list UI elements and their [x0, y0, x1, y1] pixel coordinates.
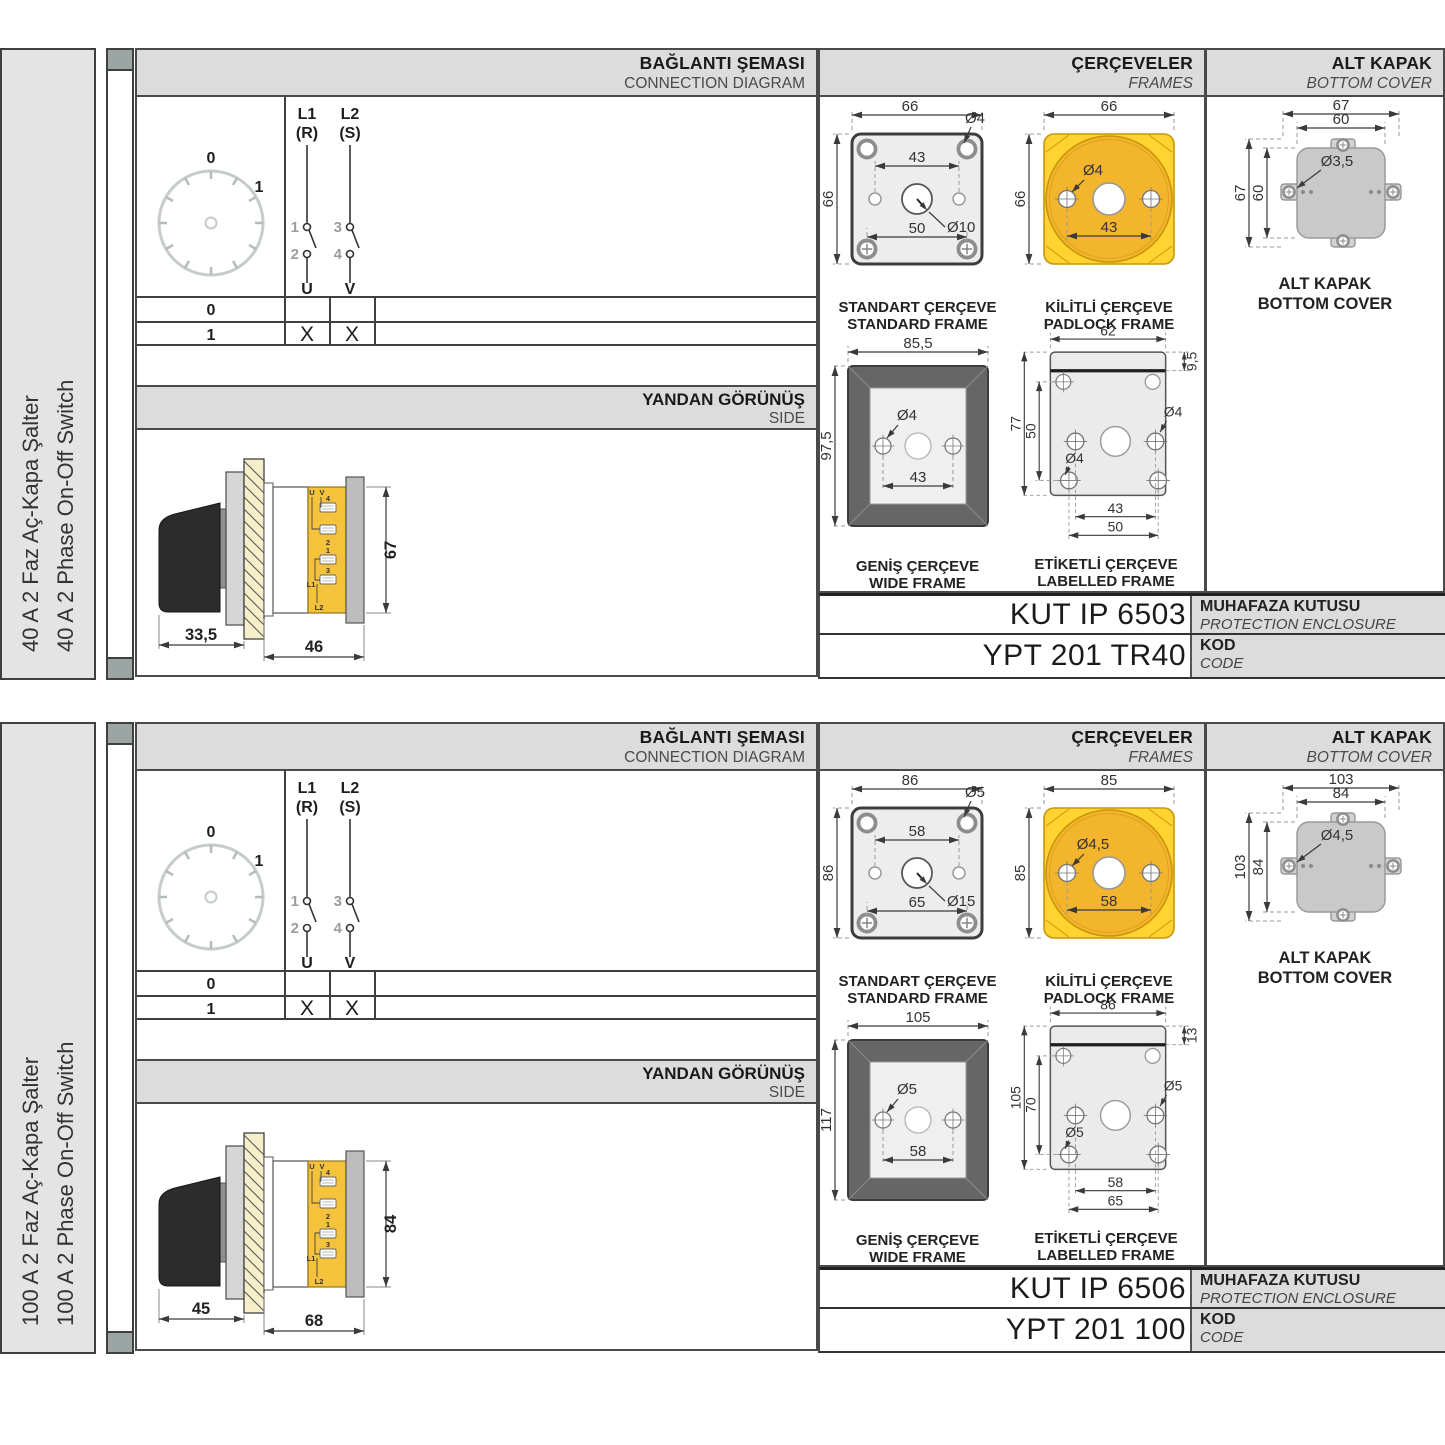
- dim-label: 46: [305, 638, 323, 656]
- header-title-en: FRAMES: [820, 74, 1193, 93]
- dim-label: 43: [1108, 500, 1124, 516]
- terminal-l2: L2: [315, 603, 324, 612]
- strip-square-bottom: [108, 657, 132, 678]
- connection-diagram-drawing: 0 1 L1 (R) L2 (S) 1 2 3 4 U V 0: [137, 97, 816, 347]
- dim-label: Ø5: [965, 784, 985, 801]
- product-code-row: YPT 201 100 KOD CODE: [818, 1309, 1445, 1353]
- dim-label: Ø5: [1164, 1077, 1183, 1093]
- connection-diagram-drawing: 0 1 L1 (R) L2 (S) 1 2 3 4 U V 0: [137, 771, 816, 1021]
- product-name-tr: 40 A 2 Faz Aç-Kapa Şalter: [18, 50, 44, 678]
- dim-label: 97,5: [818, 431, 835, 460]
- wide-frame-area: 85,5 97,5 Ø4 43: [825, 338, 1010, 558]
- header-connection-diagram: BAĞLANTI ŞEMASI CONNECTION DIAGRAM: [137, 50, 816, 97]
- terminal-1: 1: [326, 1220, 330, 1229]
- dim-label: Ø4,5: [1077, 836, 1110, 853]
- contact-4-label: 4: [334, 920, 343, 937]
- selector-dial: 0 1: [159, 824, 264, 949]
- bottom-cover-drawing: 103 84 103 84 Ø4,5: [1235, 774, 1435, 946]
- title-tr: STANDART ÇERÇEVE: [820, 973, 1015, 990]
- connection-diagram-area: 0 1 L1 (R) L2 (S) 1 2 3 4 U V 0: [137, 97, 816, 347]
- dim-label: 43: [909, 149, 926, 166]
- dim-label: 60: [1333, 111, 1350, 128]
- product-name-tr: 100 A 2 Faz Aç-Kapa Şalter: [18, 724, 44, 1352]
- switch-position-table: 0 1 X X: [207, 302, 359, 346]
- strip-square-top: [108, 50, 132, 71]
- dim-label: 85: [1101, 772, 1118, 789]
- dim-label: 67: [1232, 185, 1249, 202]
- title-tr: STANDART ÇERÇEVE: [820, 299, 1015, 316]
- contact-closed-u: X: [300, 323, 314, 346]
- side-view-drawing: U V 4 2 1 3 L1 L2 45 68: [139, 1109, 589, 1347]
- dim-height: 85: [1012, 808, 1041, 938]
- standard-frame-drawing: 86 86 Ø5 58 Ø15: [825, 774, 1010, 971]
- header-title-tr: YANDAN GÖRÜNÜŞ: [137, 389, 805, 410]
- phase-s-label: (S): [339, 799, 360, 816]
- title-tr: GENİŞ ÇERÇEVE: [820, 1232, 1015, 1249]
- terminal-u-label: U: [301, 955, 313, 972]
- dim-label: 84: [382, 1214, 400, 1233]
- dim-width: 66: [1044, 98, 1174, 130]
- dim-label: Ø10: [947, 219, 975, 236]
- title-en: BOTTOM COVER: [1207, 968, 1443, 988]
- front-plate: [226, 472, 244, 625]
- strip-square-top: [108, 724, 132, 745]
- terminal-v: V: [319, 488, 324, 497]
- enclosure-row: KUT IP 6506 MUHAFAZA KUTUSU PROTECTION E…: [818, 1267, 1445, 1309]
- dim-label: 58: [1101, 893, 1118, 910]
- header-title-tr: ALT KAPAK: [1207, 727, 1432, 748]
- terminal-v-label: V: [345, 955, 356, 972]
- shaft-hole: [1093, 183, 1125, 215]
- shaft-hole: [1101, 1101, 1131, 1131]
- product-name-en: 40 A 2 Phase On-Off Switch: [53, 50, 79, 678]
- terminal-v-label: V: [345, 281, 356, 298]
- contact-3-label: 3: [334, 219, 342, 236]
- section-frames: ÇERÇEVELER FRAMES 86 86 Ø5: [818, 722, 1206, 1267]
- section-bottom-cover: ALT KAPAK BOTTOM COVER 103 84 103 84: [1205, 722, 1445, 1267]
- dim-label: 86: [902, 772, 919, 789]
- terminal-3: 3: [326, 1240, 330, 1249]
- bottom-cover-title: ALT KAPAK BOTTOM COVER: [1207, 274, 1443, 314]
- header-frames: ÇERÇEVELER FRAMES: [820, 724, 1204, 771]
- dial-pos-0: 0: [207, 150, 216, 167]
- switch-schematic: L1 (R) L2 (S) 1 2 3 4 U V: [291, 106, 361, 298]
- switch-schematic: L1 (R) L2 (S) 1 2 3 4 U V: [291, 780, 361, 972]
- dim-width: 66: [852, 98, 982, 130]
- dim-width: 62: [1050, 322, 1165, 348]
- section-frames: ÇERÇEVELER FRAMES 66 66 Ø4: [818, 48, 1206, 593]
- header-title-en: FRAMES: [820, 748, 1193, 767]
- dim-label: 66: [1012, 191, 1029, 208]
- title-en: BOTTOM COVER: [1207, 294, 1443, 314]
- dim-label: 65: [909, 894, 926, 911]
- header-frames: ÇERÇEVELER FRAMES: [820, 50, 1204, 97]
- label-tr: MUHAFAZA KUTUSU: [1200, 1271, 1445, 1290]
- row-0-label: 0: [207, 302, 216, 319]
- wide-frame-drawing: 105 117 Ø5 58: [825, 1012, 1010, 1232]
- padlock-frame-area: 85 85 Ø4,5 58: [1017, 774, 1202, 971]
- wide-frame-drawing: 85,5 97,5 Ø4 43: [825, 338, 1010, 558]
- dim-label: 60: [1250, 185, 1267, 202]
- product-sidebar: 40 A 2 Faz Aç-Kapa Şalter 40 A 2 Phase O…: [0, 48, 96, 680]
- dim-label: Ø4: [1164, 403, 1183, 419]
- dim-label: Ø5: [1065, 1124, 1084, 1140]
- product-code-label: KOD CODE: [1190, 1309, 1445, 1351]
- dim-label: 84: [1250, 859, 1267, 876]
- panel-100a-switch: 100 A 2 Faz Aç-Kapa Şalter 100 A 2 Phase…: [0, 722, 1445, 1354]
- knob: [159, 503, 220, 612]
- phase-s-label: (S): [339, 125, 360, 142]
- terminal-3: 3: [326, 566, 330, 575]
- dim-label: 84: [1333, 785, 1350, 802]
- labelled-frame-title: ETİKETLİ ÇERÇEVE LABELLED FRAME: [1006, 556, 1206, 590]
- dim-label: Ø4: [1065, 450, 1084, 466]
- dim-label: 86: [1100, 996, 1116, 1012]
- enclosure-code: KUT IP 6506: [820, 1270, 1190, 1307]
- header-title-en: CONNECTION DIAGRAM: [137, 748, 805, 767]
- dim-label: Ø5: [897, 1081, 917, 1098]
- dim-label: 50: [1022, 423, 1038, 439]
- title-tr: GENİŞ ÇERÇEVE: [820, 558, 1015, 575]
- title-en: LABELLED FRAME: [1006, 573, 1206, 590]
- header-title-en: BOTTOM COVER: [1207, 74, 1432, 93]
- phase-r-label: (R): [296, 799, 318, 816]
- switch-housing: [273, 487, 308, 613]
- title-tr: KİLİTLİ ÇERÇEVE: [1010, 973, 1208, 990]
- phase-l1-label: L1: [298, 106, 317, 123]
- dim-label: 9,5: [1183, 351, 1199, 371]
- row-0-label: 0: [207, 976, 216, 993]
- contact-1-label: 1: [291, 893, 299, 910]
- header-bottom-cover: ALT KAPAK BOTTOM COVER: [1207, 724, 1443, 771]
- side-view-area: U V 4 2 1 3 L1 L2 45 68: [139, 1109, 589, 1347]
- header-title-en: BOTTOM COVER: [1207, 748, 1432, 767]
- dim-label: 43: [910, 469, 927, 486]
- dim-height: 117: [818, 1040, 845, 1200]
- dim-label-band: 9,5: [1166, 351, 1200, 371]
- title-tr: ETİKETLİ ÇERÇEVE: [1006, 1230, 1206, 1247]
- dim-body-height: 67: [366, 487, 400, 613]
- dim-label: 58: [909, 823, 926, 840]
- dial-pos-0: 0: [207, 824, 216, 841]
- switch-side-body: U V 4 2 1 3 L1 L2: [159, 1133, 364, 1313]
- terminal-1: 1: [326, 546, 330, 555]
- padlock-frame-area: 66 66 Ø4 43: [1017, 100, 1202, 297]
- dim-label: 43: [1101, 219, 1118, 236]
- dim-label: 50: [1108, 519, 1124, 535]
- product-code-row: YPT 201 TR40 KOD CODE: [818, 635, 1445, 679]
- header-connection-diagram: BAĞLANTI ŞEMASI CONNECTION DIAGRAM: [137, 724, 816, 771]
- title-en: STANDARD FRAME: [820, 316, 1015, 333]
- side-view-drawing: U V 4 2 1 3 L1 L2 33,5 46: [139, 435, 589, 673]
- strip-square-bottom: [108, 1331, 132, 1352]
- contact-closed-v: X: [345, 997, 359, 1020]
- back-plate: [346, 1151, 364, 1297]
- product-name-en: 100 A 2 Phase On-Off Switch: [53, 724, 79, 1352]
- enclosure-label: MUHAFAZA KUTUSU PROTECTION ENCLOSURE: [1190, 596, 1445, 633]
- contact-closed-u: X: [300, 997, 314, 1020]
- product-code: YPT 201 100: [820, 1309, 1190, 1351]
- shaft-hole: [1101, 427, 1131, 457]
- phase-r-label: (R): [296, 125, 318, 142]
- terminal-l1: L1: [307, 1254, 316, 1263]
- title-tr: KİLİTLİ ÇERÇEVE: [1010, 299, 1208, 316]
- dial-pos-1: 1: [255, 179, 264, 196]
- title-en: LABELLED FRAME: [1006, 1247, 1206, 1264]
- dim-width: 86: [852, 772, 982, 804]
- dim-width: 85: [1044, 772, 1174, 804]
- mounting-panel: [244, 1133, 264, 1313]
- bottom-cover-area: 67 60 67 60 Ø3,5: [1235, 100, 1435, 272]
- phase-l2-label: L2: [341, 780, 360, 797]
- dim-label: 33,5: [185, 626, 217, 644]
- dim-height: 86: [820, 808, 849, 938]
- switch-position-table: 0 1 X X: [207, 976, 359, 1020]
- section-bottom-cover: ALT KAPAK BOTTOM COVER 67 60 67 60: [1205, 48, 1445, 593]
- bottom-cover-title: ALT KAPAK BOTTOM COVER: [1207, 948, 1443, 988]
- header-title-tr: ALT KAPAK: [1207, 53, 1432, 74]
- terminal-u: U: [309, 488, 314, 497]
- knob: [159, 1177, 220, 1286]
- dim-width: 105: [848, 1009, 988, 1036]
- dim-label: 66: [1101, 98, 1118, 115]
- contact-closed-v: X: [345, 323, 359, 346]
- dim-label: 85,5: [903, 335, 932, 352]
- dim-label: 66: [902, 98, 919, 115]
- label-en: CODE: [1200, 1329, 1445, 1347]
- wide-frame-title: GENİŞ ÇERÇEVE WIDE FRAME: [820, 558, 1015, 592]
- section-connection: BAĞLANTI ŞEMASI CONNECTION DIAGRAM 0 1 L…: [135, 48, 818, 677]
- dim-label: 103: [1232, 854, 1249, 879]
- dim-label: 66: [820, 191, 837, 208]
- header-title-tr: BAĞLANTI ŞEMASI: [137, 727, 805, 748]
- dim-label: 70: [1022, 1097, 1038, 1113]
- header-title-tr: YANDAN GÖRÜNÜŞ: [137, 1063, 805, 1084]
- dim-label: Ø4: [965, 110, 985, 127]
- wide-frame-title: GENİŞ ÇERÇEVE WIDE FRAME: [820, 1232, 1015, 1266]
- header-title-tr: ÇERÇEVELER: [820, 53, 1193, 74]
- dim-label: 65: [1108, 1193, 1124, 1209]
- product-code: YPT 201 TR40: [820, 635, 1190, 677]
- shaft-hole: [1093, 857, 1125, 889]
- mounting-panel: [244, 459, 264, 639]
- dim-label: 58: [1108, 1174, 1124, 1190]
- dim-label: 45: [192, 1300, 210, 1318]
- bottom-cover-area: 103 84 103 84 Ø4,5: [1235, 774, 1435, 946]
- shaft-hole: [905, 1107, 931, 1133]
- shaft-hole: [905, 433, 931, 459]
- dial-pos-1: 1: [255, 853, 264, 870]
- label-tr: KOD: [1200, 1310, 1445, 1329]
- phase-l2-label: L2: [341, 106, 360, 123]
- label-tr: KOD: [1200, 636, 1445, 655]
- dim-label: 105: [905, 1009, 930, 1026]
- label-en: CODE: [1200, 655, 1445, 673]
- terminal-v: V: [319, 1162, 324, 1171]
- terminal-l2: L2: [315, 1277, 324, 1286]
- header-title-en: CONNECTION DIAGRAM: [137, 74, 805, 93]
- dim-body-depth: 68: [264, 1293, 364, 1335]
- label-en: PROTECTION ENCLOSURE: [1200, 1290, 1445, 1308]
- label-tr: MUHAFAZA KUTUSU: [1200, 597, 1445, 616]
- labelled-frame-area: 62 9,5 77 50 Ø4: [1015, 326, 1201, 554]
- header-title-en: SIDE: [137, 1084, 805, 1102]
- header-title-en: SIDE: [137, 410, 805, 428]
- dim-height: 66: [820, 134, 849, 264]
- header-side-view: YANDAN GÖRÜNÜŞ SIDE: [137, 1059, 816, 1104]
- title-en: WIDE FRAME: [820, 1249, 1015, 1266]
- dim-label: 62: [1100, 322, 1116, 338]
- section-connection: BAĞLANTI ŞEMASI CONNECTION DIAGRAM 0 1 L…: [135, 722, 818, 1351]
- dim-height: 66: [1012, 134, 1041, 264]
- padlock-frame-drawing: 66 66 Ø4 43: [1017, 100, 1202, 297]
- contact-3-label: 3: [334, 893, 342, 910]
- dim-label: 68: [305, 1312, 323, 1330]
- contact-2-label: 2: [291, 246, 299, 263]
- back-plate: [346, 477, 364, 623]
- standard-frame-title: STANDART ÇERÇEVE STANDARD FRAME: [820, 299, 1015, 333]
- enclosure-row: KUT IP 6503 MUHAFAZA KUTUSU PROTECTION E…: [818, 593, 1445, 635]
- dim-label: Ø15: [947, 893, 975, 910]
- selector-dial: 0 1: [159, 150, 264, 275]
- header-title-tr: ÇERÇEVELER: [820, 727, 1193, 748]
- header-side-view: YANDAN GÖRÜNÜŞ SIDE: [137, 385, 816, 430]
- front-plate: [226, 1146, 244, 1299]
- enclosure-code: KUT IP 6503: [820, 596, 1190, 633]
- labelled-frame-area: 86 13 105 70 Ø5: [1015, 1000, 1201, 1228]
- title-tr: ETİKETLİ ÇERÇEVE: [1006, 556, 1206, 573]
- dim-label: Ø3,5: [1321, 153, 1354, 170]
- row-1-label: 1: [207, 327, 216, 344]
- dim-label: 85: [1012, 865, 1029, 882]
- dim-label-band: 13: [1166, 1026, 1200, 1045]
- dim-body-height: 84: [366, 1161, 400, 1287]
- dim-label: 13: [1183, 1027, 1199, 1043]
- title-en: STANDARD FRAME: [820, 990, 1015, 1007]
- product-sidebar: 100 A 2 Faz Aç-Kapa Şalter 100 A 2 Phase…: [0, 722, 96, 1354]
- dim-label: Ø4,5: [1321, 827, 1354, 844]
- standard-frame-area: 66 66 Ø4 43 Ø10: [825, 100, 1010, 297]
- dim-label: 77: [1008, 416, 1024, 432]
- switch-side-body: U V 4 2 1 3 L1 L2: [159, 459, 364, 639]
- contact-2-label: 2: [291, 920, 299, 937]
- dim-label: 67: [382, 541, 400, 559]
- dim-label: 50: [909, 220, 926, 237]
- dim-body-depth: 46: [264, 619, 364, 661]
- enclosure-label: MUHAFAZA KUTUSU PROTECTION ENCLOSURE: [1190, 1270, 1445, 1307]
- phase-l1-label: L1: [298, 780, 317, 797]
- binding-strip: [106, 48, 134, 680]
- labelled-frame-drawing: 86 13 105 70 Ø5: [1015, 1000, 1201, 1228]
- terminal-u-label: U: [301, 281, 313, 298]
- label-en: PROTECTION ENCLOSURE: [1200, 616, 1445, 634]
- dim-width: 85,5: [848, 335, 988, 362]
- contact-4-label: 4: [334, 246, 343, 263]
- labelled-frame-title: ETİKETLİ ÇERÇEVE LABELLED FRAME: [1006, 1230, 1206, 1264]
- title-tr: ALT KAPAK: [1207, 948, 1443, 968]
- dim-label: 105: [1008, 1086, 1024, 1110]
- switch-housing: [273, 1161, 308, 1287]
- labelled-frame-drawing: 62 9,5 77 50 Ø4: [1015, 326, 1201, 554]
- standard-frame-drawing: 66 66 Ø4 43 Ø10: [825, 100, 1010, 297]
- standard-frame-area: 86 86 Ø5 58 Ø15: [825, 774, 1010, 971]
- contact-1-label: 1: [291, 219, 299, 236]
- title-en: WIDE FRAME: [820, 575, 1015, 592]
- connection-diagram-area: 0 1 L1 (R) L2 (S) 1 2 3 4 U V 0: [137, 771, 816, 1021]
- standard-frame-title: STANDART ÇERÇEVE STANDARD FRAME: [820, 973, 1015, 1007]
- side-view-area: U V 4 2 1 3 L1 L2 33,5 46: [139, 435, 589, 673]
- dim-label: 86: [820, 865, 837, 882]
- header-bottom-cover: ALT KAPAK BOTTOM COVER: [1207, 50, 1443, 97]
- dim-height: 97,5: [818, 366, 845, 526]
- wide-frame-area: 105 117 Ø5 58: [825, 1012, 1010, 1232]
- dim-label: 58: [910, 1143, 927, 1160]
- dim-label: 117: [818, 1108, 835, 1132]
- row-1-label: 1: [207, 1001, 216, 1018]
- padlock-frame-drawing: 85 85 Ø4,5 58: [1017, 774, 1202, 971]
- bottom-cover-drawing: 67 60 67 60 Ø3,5: [1235, 100, 1435, 272]
- binding-strip: [106, 722, 134, 1354]
- header-title-tr: BAĞLANTI ŞEMASI: [137, 53, 805, 74]
- dim-label: Ø4: [1083, 162, 1103, 179]
- terminal-u: U: [309, 1162, 314, 1171]
- dim-label: Ø4: [897, 407, 917, 424]
- panel-40a-switch: 40 A 2 Faz Aç-Kapa Şalter 40 A 2 Phase O…: [0, 48, 1445, 680]
- product-code-label: KOD CODE: [1190, 635, 1445, 677]
- dim-width: 86: [1050, 996, 1165, 1022]
- title-tr: ALT KAPAK: [1207, 274, 1443, 294]
- terminal-l1: L1: [307, 580, 316, 589]
